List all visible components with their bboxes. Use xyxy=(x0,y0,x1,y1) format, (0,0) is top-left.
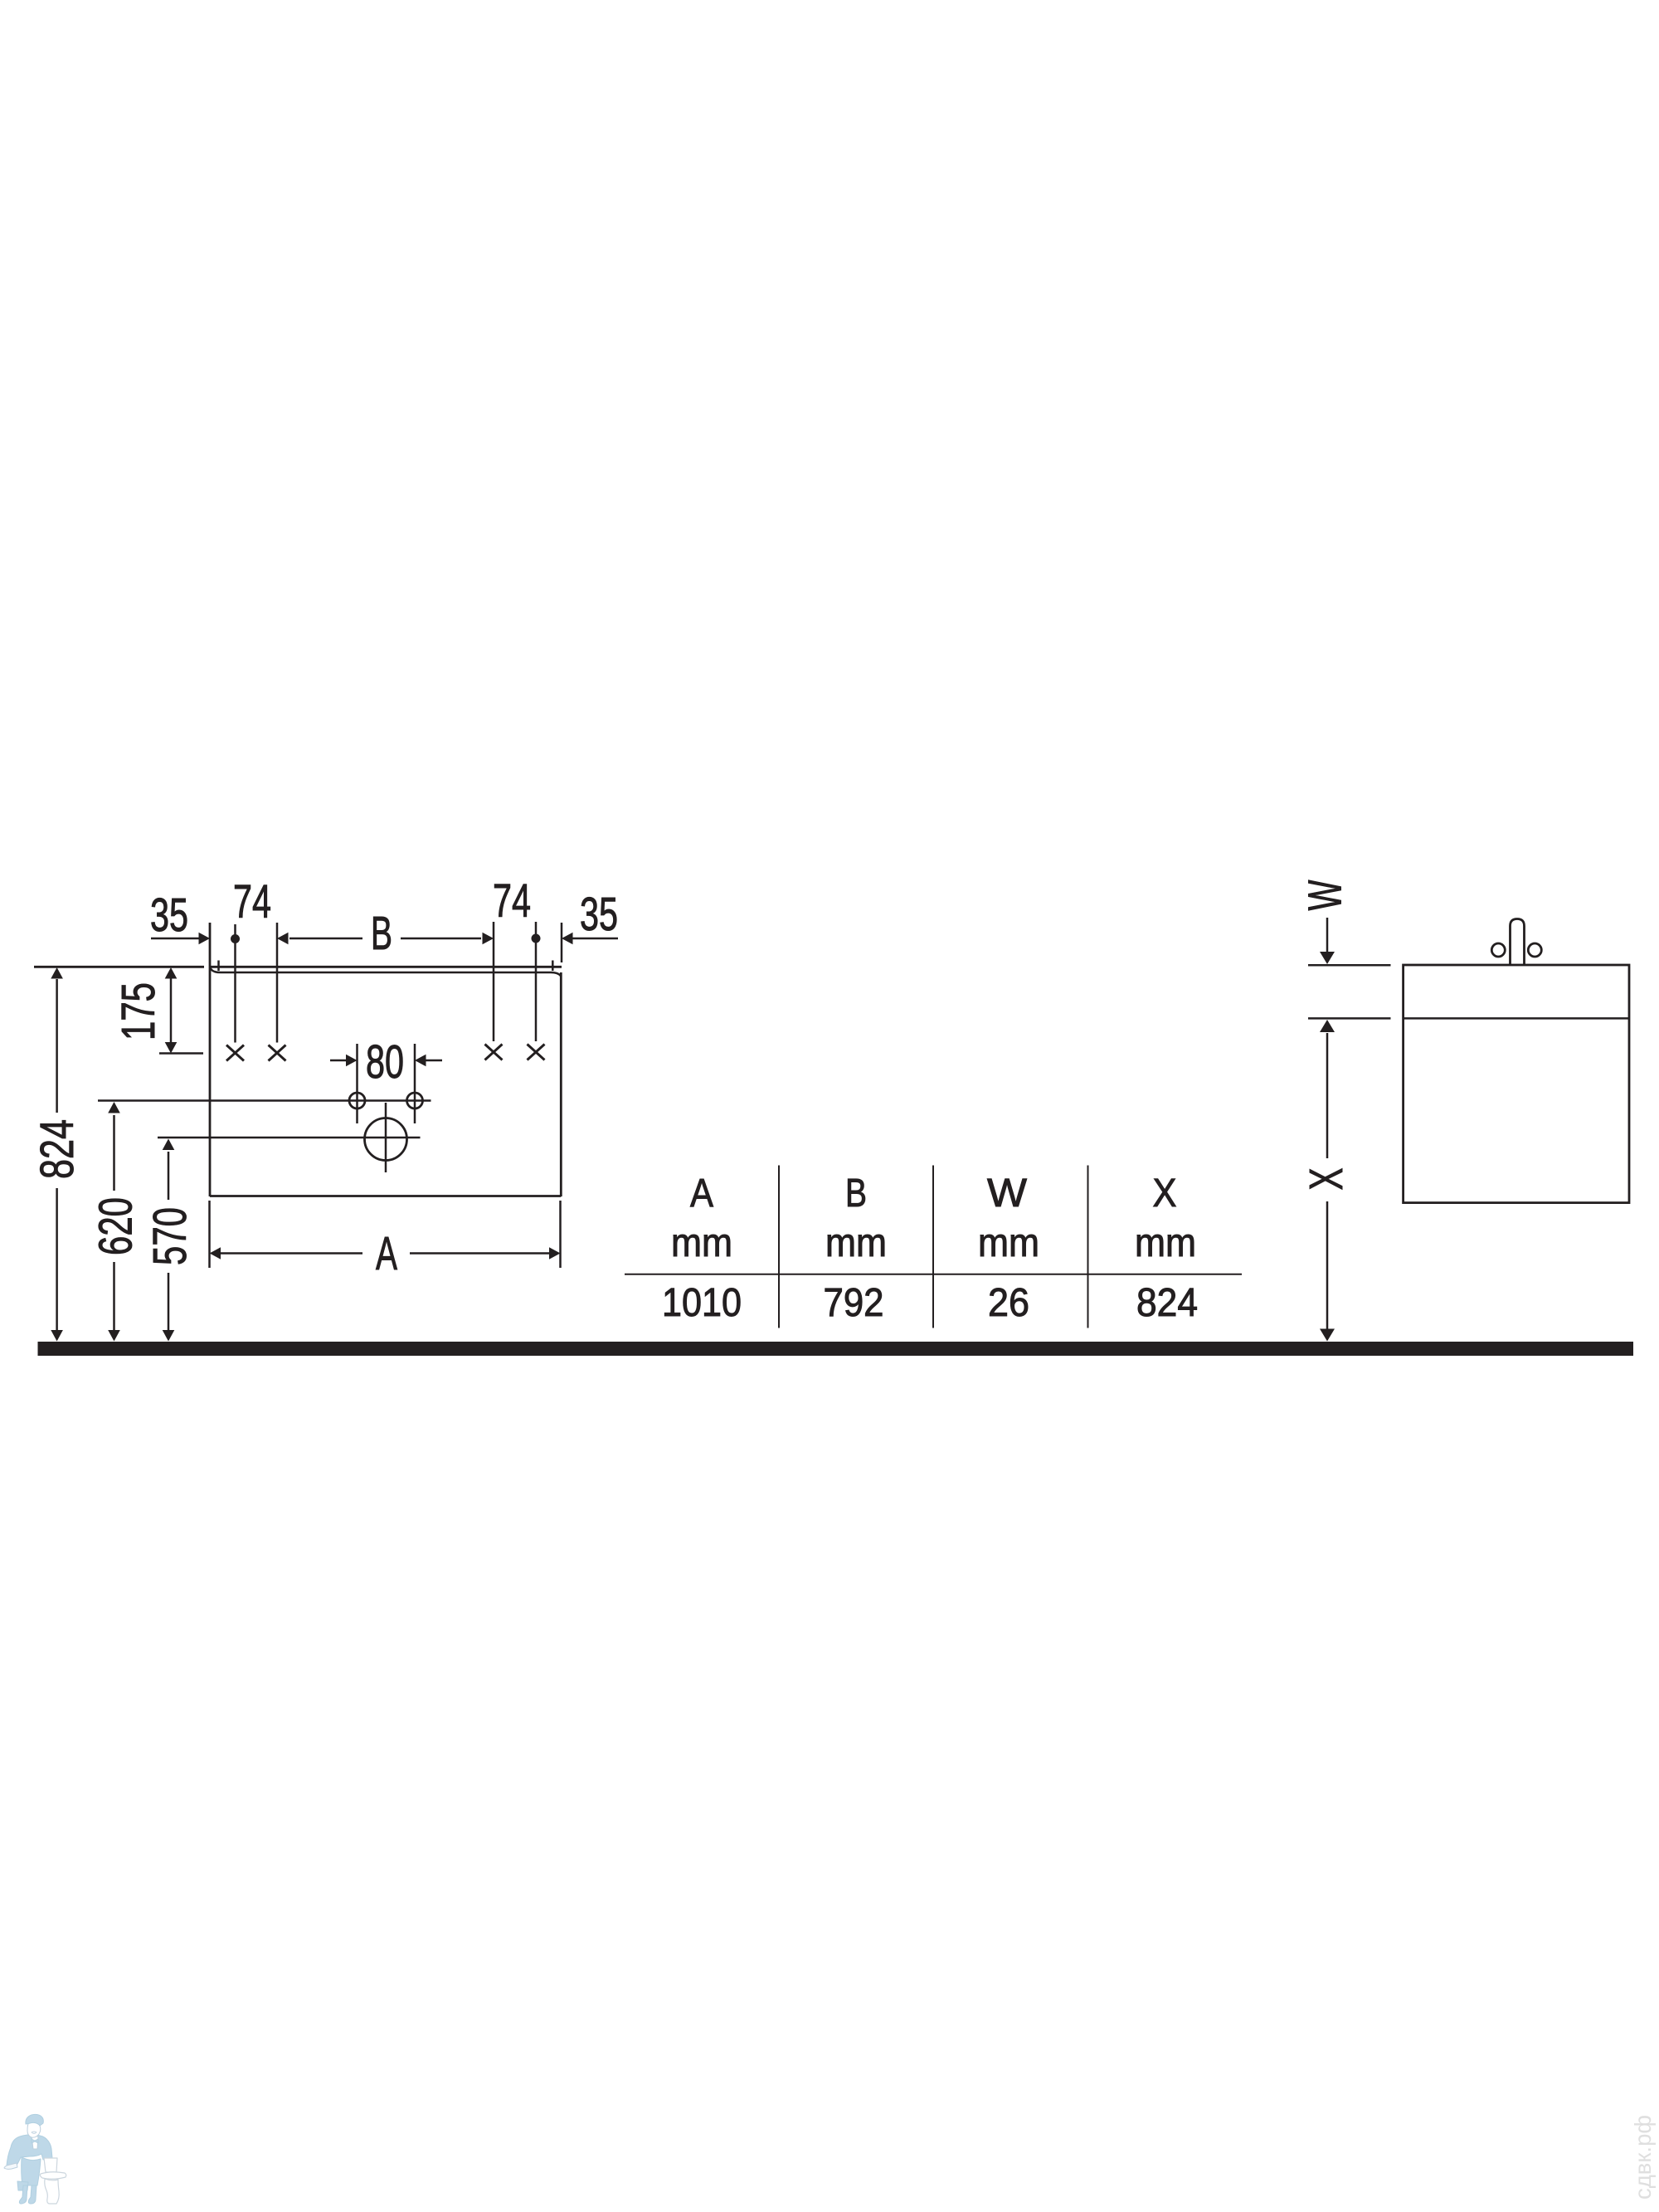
svg-text:сдвк.рф: сдвк.рф xyxy=(1630,2115,1656,2200)
svg-text:35: 35 xyxy=(150,889,188,942)
svg-text:mm: mm xyxy=(825,1221,887,1265)
svg-text:620: 620 xyxy=(90,1197,143,1255)
svg-text:74: 74 xyxy=(233,875,271,928)
svg-text:X: X xyxy=(1300,1168,1353,1191)
svg-text:1010: 1010 xyxy=(662,1281,742,1325)
svg-text:570: 570 xyxy=(144,1207,197,1265)
svg-text:W: W xyxy=(1299,879,1352,910)
svg-text:80: 80 xyxy=(366,1035,404,1089)
svg-text:175: 175 xyxy=(112,982,165,1040)
svg-text:35: 35 xyxy=(580,888,618,941)
svg-text:W: W xyxy=(987,1172,1028,1216)
svg-text:B: B xyxy=(371,907,392,960)
svg-text:A: A xyxy=(376,1227,397,1280)
svg-text:mm: mm xyxy=(671,1221,732,1265)
svg-text:26: 26 xyxy=(988,1281,1029,1325)
svg-text:mm: mm xyxy=(1135,1221,1196,1265)
svg-text:792: 792 xyxy=(824,1281,884,1325)
svg-text:mm: mm xyxy=(978,1221,1039,1265)
svg-text:X: X xyxy=(1153,1172,1177,1216)
svg-text:A: A xyxy=(690,1172,713,1216)
svg-text:B: B xyxy=(845,1172,867,1216)
svg-text:74: 74 xyxy=(493,875,531,928)
svg-text:824: 824 xyxy=(1136,1281,1198,1325)
svg-text:824: 824 xyxy=(31,1119,84,1179)
